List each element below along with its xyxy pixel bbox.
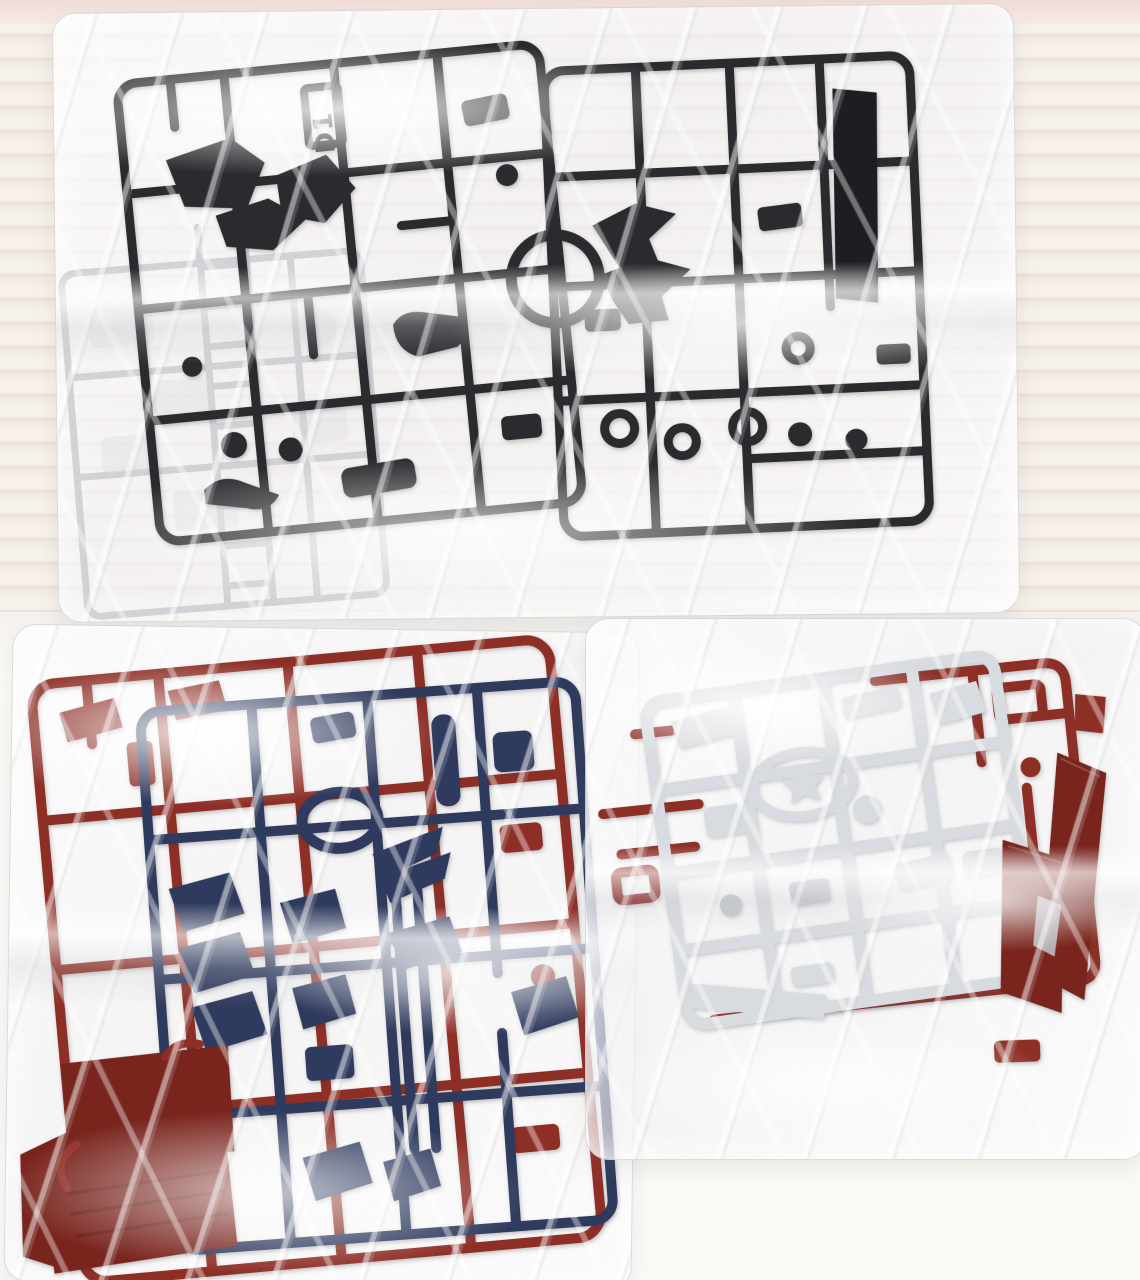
runner-letter-tag-text: D1 [308,110,342,154]
red-blade-left [994,840,1071,1013]
dark-runner-sprue-left: D1 [105,30,595,556]
dark-runner-sprue-right [533,42,950,554]
plastic-bag-bottom-right [585,618,1140,1160]
red-blades [994,750,1107,1015]
red-panels [17,1039,244,1280]
plastic-bag-bottom-left [3,624,640,1280]
joint-donut-part [604,413,635,444]
white-runner-shaded-parts [718,878,831,918]
plastic-bag-top: D1 [52,3,1020,623]
joint-donut-part [668,427,697,456]
red-flat-panel-parts [8,1022,286,1280]
photo-model-kit-sprues: D1 [0,0,1140,1280]
joint-donut-part [786,336,811,361]
red-blade-panels [977,743,1140,1041]
